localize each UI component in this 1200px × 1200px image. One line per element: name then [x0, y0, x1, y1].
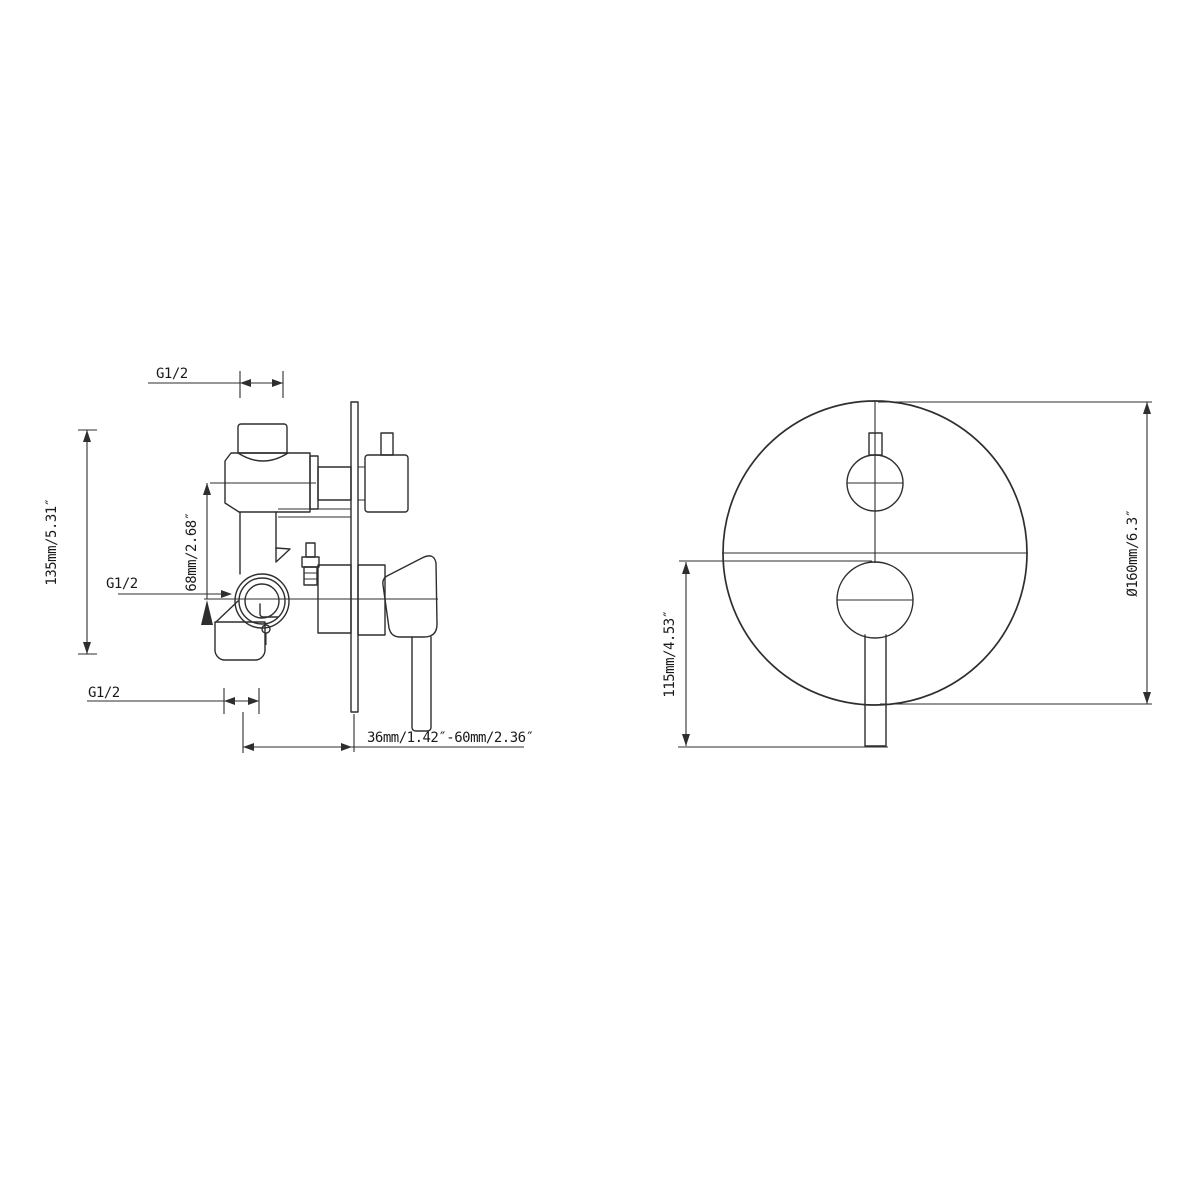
- thread-label-bottom: G1/2: [88, 685, 120, 701]
- body-mid-column: [240, 512, 276, 574]
- dim-overall-height: 135mm/5.31″: [44, 430, 97, 654]
- dim-install-depth: 36mm/1.42″-60mm/2.36″: [243, 712, 534, 753]
- handle-bar-side: [412, 637, 431, 731]
- port-saddle-curve: [238, 453, 288, 461]
- dim-plate-diameter-label: Ø160mm/6.3″: [1125, 509, 1141, 596]
- dim-handle-drop: 115mm/4.53″: [662, 561, 888, 747]
- diverter-stem-side: [381, 433, 393, 455]
- diverter-knob-side: [365, 455, 408, 512]
- nipple-behind-plate: [358, 467, 365, 500]
- cartridge-stem: [306, 543, 315, 557]
- spout-detail: [276, 548, 290, 562]
- dim-thread-bottom: G1/2: [87, 685, 259, 714]
- cartridge-nut: [302, 557, 319, 567]
- check-ball: [262, 625, 270, 633]
- dim-handle-drop-label: 115mm/4.53″: [662, 610, 678, 697]
- dim-inlet-to-outlet-label: 68mm/2.68″: [184, 512, 200, 591]
- dim-thread-mid: G1/2: [106, 576, 232, 598]
- connector-nipple: [318, 467, 351, 500]
- cartridge-threads: [304, 573, 317, 579]
- body-bracket-arm: [278, 509, 351, 517]
- top-inlet-port: [238, 424, 287, 453]
- dim-overall-height-label: 135mm/5.31″: [44, 498, 60, 585]
- cartridge-body: [304, 567, 317, 585]
- dim-inlet-to-outlet: 68mm/2.68″: [184, 483, 213, 625]
- handle-bar-front: [865, 635, 886, 746]
- thread-label-top: G1/2: [156, 366, 188, 382]
- technical-drawing-page: 135mm/5.31″ 68mm/2.68″ G1/2 G1/2 G1/: [0, 0, 1200, 1200]
- shower-valve-technical-drawing: 135mm/5.31″ 68mm/2.68″ G1/2 G1/2 G1/: [0, 0, 1200, 1200]
- dim-install-depth-label: 36mm/1.42″-60mm/2.36″: [367, 730, 534, 746]
- handle-lever-side: [383, 556, 437, 637]
- outlet-boss-inner: [245, 584, 279, 618]
- thread-label-mid: G1/2: [106, 576, 138, 592]
- wall-plate-edge: [351, 402, 358, 712]
- outlet-boss-outer: [235, 574, 289, 628]
- front-view: 115mm/4.53″ Ø160mm/6.3″: [662, 401, 1152, 747]
- dim-thread-top: G1/2: [148, 366, 283, 398]
- side-view: 135mm/5.31″ 68mm/2.68″ G1/2 G1/2 G1/: [44, 366, 534, 753]
- handle-escutcheon: [358, 565, 385, 635]
- body-lower-chamfer: [216, 601, 238, 622]
